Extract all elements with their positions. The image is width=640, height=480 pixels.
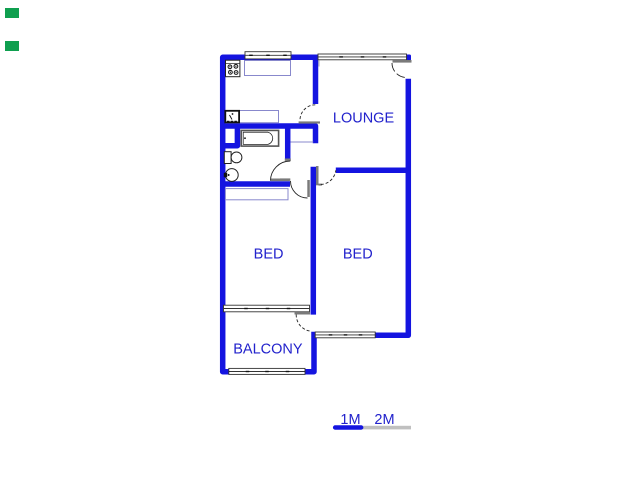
svg-text:BED: BED — [254, 246, 284, 262]
svg-text:2M: 2M — [374, 412, 394, 428]
svg-text:LOUNGE: LOUNGE — [333, 111, 395, 127]
svg-text:BALCONY: BALCONY — [233, 341, 303, 357]
svg-text:BED: BED — [343, 246, 373, 262]
